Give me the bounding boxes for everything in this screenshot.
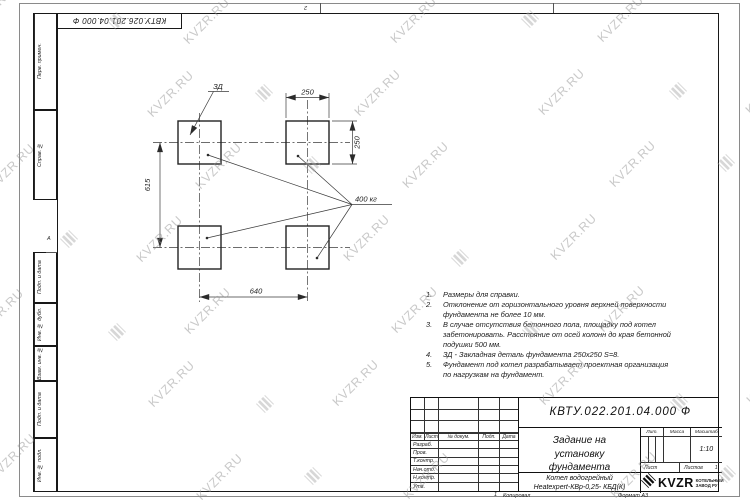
- centerlines: [153, 100, 350, 302]
- load-leader-lines: [207, 155, 392, 258]
- col-podp: Подп.: [479, 434, 500, 440]
- title-block-bottom: Котел водогрейный Heatexpert-КВр-0,25- К…: [519, 473, 722, 493]
- kvzr-logo-subtext: КОТЕЛЬНЫЙ ЗАВОД РУ: [696, 478, 722, 489]
- kvzr-logo-text: KVZR: [658, 476, 694, 490]
- col-data: Дата: [500, 434, 518, 440]
- note-text: Размеры для справки.: [443, 290, 671, 300]
- sig-row-prov: Пров.: [411, 449, 518, 457]
- note-item: 3.В случае отсутствия бетонного пола, пл…: [423, 320, 719, 350]
- note-item: 5.Фундамент под котел разрабатывает прое…: [423, 360, 719, 380]
- dim-250-top: 250: [300, 88, 314, 97]
- notes-list: 1.Размеры для справки. 2.Отклонение от г…: [423, 290, 719, 380]
- dimension-lines: [160, 93, 357, 297]
- scale-label: Масштаб: [691, 428, 722, 436]
- sig-row-nachotd: Нач.отд.: [411, 466, 518, 474]
- col-list: Лист: [425, 434, 439, 440]
- dim-640-bottom: 640: [250, 287, 263, 296]
- sig-row-utv: Утв.: [411, 483, 518, 491]
- sheets-value: 1: [715, 465, 718, 471]
- note-number: 5.: [423, 360, 443, 380]
- dim-615-left: 615: [143, 178, 152, 191]
- note-text: В случае отсутствия бетонного пола, площ…: [443, 320, 671, 350]
- title-block-header-row: Изм. Лист № докум. Подп. Дата: [411, 433, 518, 441]
- change-row: [411, 421, 518, 433]
- load-label: 400 кг: [355, 195, 377, 204]
- sig-row-nkontr: Н.контр.: [411, 474, 518, 482]
- note-text: Отклонение от горизонтального уровня вер…: [443, 300, 671, 320]
- load-leader-dots: [206, 154, 319, 260]
- lit-cells: [641, 437, 664, 462]
- product-name: Котел водогрейный Heatexpert-КВр-0,25- К…: [519, 473, 641, 493]
- lit-mass-scale-grid: Лит. Масса Масштаб 1:10 Лист Листов 1: [641, 428, 722, 472]
- company-logo: KVZR КОТЕЛЬНЫЙ ЗАВОД РУ: [641, 473, 722, 493]
- drawing-title: Задание на установку фундамента: [519, 428, 641, 472]
- note-number: 3.: [423, 320, 443, 350]
- note-number: 4.: [423, 350, 443, 360]
- col-izm: Изм.: [411, 434, 425, 440]
- title-block-mid: Задание на установку фундамента Лит. Мас…: [519, 428, 722, 473]
- sheets-label: Листов: [684, 465, 703, 471]
- product-line2: Heatexpert-КВр-0,25- КБД(К): [519, 484, 640, 493]
- note-item: 4.ЗД - Закладная деталь фундамента 250х2…: [423, 350, 719, 360]
- embedded-detail-label: ЗД: [213, 82, 223, 91]
- mass-label: Масса: [664, 428, 691, 436]
- note-text: Фундамент под котел разрабатывает проект…: [443, 360, 671, 380]
- title-block-right: КВТУ.022.201.04.000 Ф Задание на установ…: [519, 398, 722, 491]
- kvzr-logo-icon: [641, 473, 656, 493]
- scale-value: 1:10: [691, 437, 722, 462]
- note-item: 1.Размеры для справки.: [423, 290, 719, 300]
- change-row: [411, 410, 518, 422]
- lit-label: Лит.: [641, 428, 664, 436]
- sig-row-razrab: Разраб.: [411, 441, 518, 449]
- note-item: 2.Отклонение от горизонтального уровня в…: [423, 300, 719, 320]
- title-block: Изм. Лист № докум. Подп. Дата Разраб. Пр…: [410, 397, 719, 492]
- foundation-pad-top-right: [286, 121, 329, 164]
- note-text: ЗД - Закладная деталь фундамента 250х250…: [443, 350, 671, 360]
- doc-number: КВТУ.022.201.04.000 Ф: [519, 398, 722, 428]
- note-number: 2.: [423, 300, 443, 320]
- drawing-sheet: КВТУ.026.201.04.000 Ф Перв. примен. Спра…: [0, 0, 750, 500]
- note-number: 1.: [423, 290, 443, 300]
- title-block-left: Изм. Лист № докум. Подп. Дата Разраб. Пр…: [411, 398, 519, 491]
- change-row: [411, 398, 518, 410]
- sig-row-tkontr: Т.контр.: [411, 458, 518, 466]
- col-dokum: № докум.: [439, 434, 479, 440]
- product-line1: Котел водогрейный: [519, 475, 640, 484]
- embedded-detail-leader: [190, 92, 229, 136]
- dim-250-right: 250: [353, 135, 362, 149]
- sheets-cell: Листов 1: [680, 463, 722, 472]
- mass-cell: [664, 437, 691, 462]
- sheet-label: Лист: [641, 463, 680, 472]
